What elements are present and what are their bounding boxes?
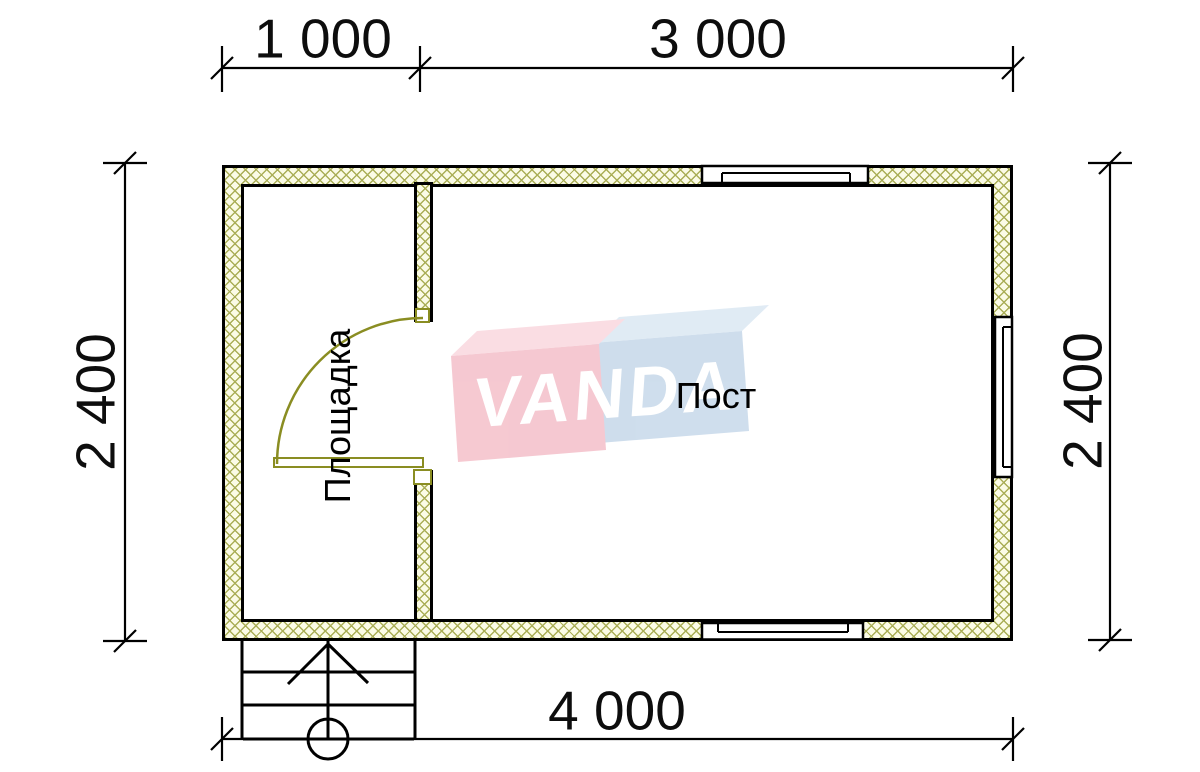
window-top: [702, 166, 868, 183]
room-label-ploshchadka: Площадка: [320, 329, 356, 504]
dimension-label-top-left: 1 000: [254, 12, 392, 67]
floor-plan-canvas: VANDA 1 000 3 000 2 400 2 400 4 000 Площ…: [0, 0, 1200, 772]
window-bottom: [702, 623, 863, 640]
door-jamb-lower: [414, 470, 431, 484]
stair-arrow-right: [328, 644, 368, 683]
entrance-steps: [242, 641, 415, 759]
dimension-label-top-right: 3 000: [649, 12, 787, 67]
door-jamb-upper: [416, 309, 429, 322]
dimension-label-bottom: 4 000: [548, 684, 686, 739]
stair-arrow-left: [288, 644, 328, 684]
room-label-post: Пост: [676, 378, 756, 414]
window-right: [995, 317, 1012, 477]
dimension-label-left: 2 400: [69, 333, 124, 471]
dimension-label-right: 2 400: [1056, 332, 1111, 470]
